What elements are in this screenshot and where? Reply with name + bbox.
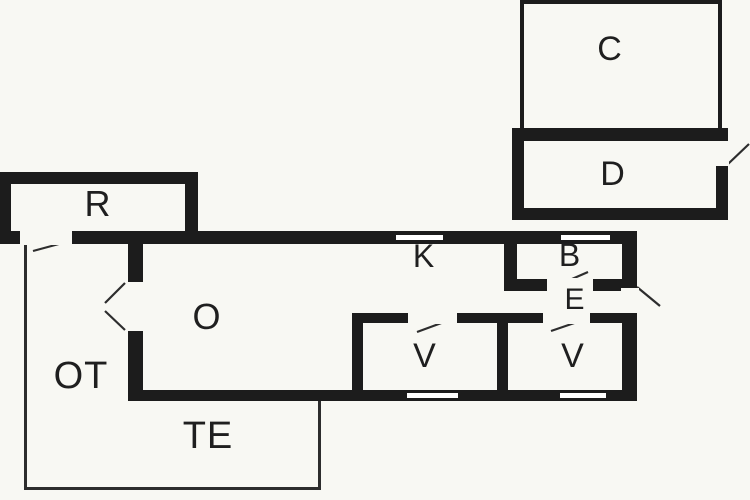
- door-swing-line: [728, 144, 749, 164]
- floor-plan: CDRKBEOOTVVTE: [0, 0, 750, 500]
- wall: [0, 231, 637, 244]
- door-opening: [20, 230, 72, 245]
- door-swing-line: [637, 287, 660, 306]
- window: [558, 391, 608, 400]
- door-opening: [715, 141, 729, 166]
- terrace-boundary-line: [24, 487, 321, 490]
- wall: [512, 128, 728, 141]
- room-label-c: C: [597, 32, 623, 66]
- wall: [520, 0, 722, 4]
- room-label-ot: OT: [54, 357, 109, 395]
- door-opening: [126, 282, 145, 331]
- room-label-b: B: [559, 239, 581, 271]
- room-label-r: R: [85, 186, 112, 222]
- room-label-te: TE: [183, 417, 234, 455]
- door-opening: [408, 312, 457, 324]
- wall: [352, 313, 363, 401]
- door-swing-line: [105, 283, 125, 303]
- wall: [352, 313, 637, 323]
- room-label-d: D: [600, 157, 626, 191]
- room-label-v2: V: [561, 339, 585, 373]
- wall: [512, 128, 524, 220]
- door-swing-layer: [0, 0, 750, 500]
- window: [405, 391, 460, 400]
- terrace-boundary-line: [318, 401, 321, 490]
- wall: [512, 208, 728, 220]
- room-label-k: K: [413, 240, 435, 272]
- room-label-e: E: [564, 285, 585, 315]
- door-swing-line: [105, 311, 125, 330]
- wall: [497, 313, 508, 401]
- wall: [718, 0, 722, 130]
- room-label-v1: V: [413, 339, 437, 373]
- door-opening: [621, 288, 639, 313]
- room-label-o: O: [192, 299, 221, 335]
- terrace-boundary-line: [24, 244, 27, 490]
- wall: [520, 0, 524, 128]
